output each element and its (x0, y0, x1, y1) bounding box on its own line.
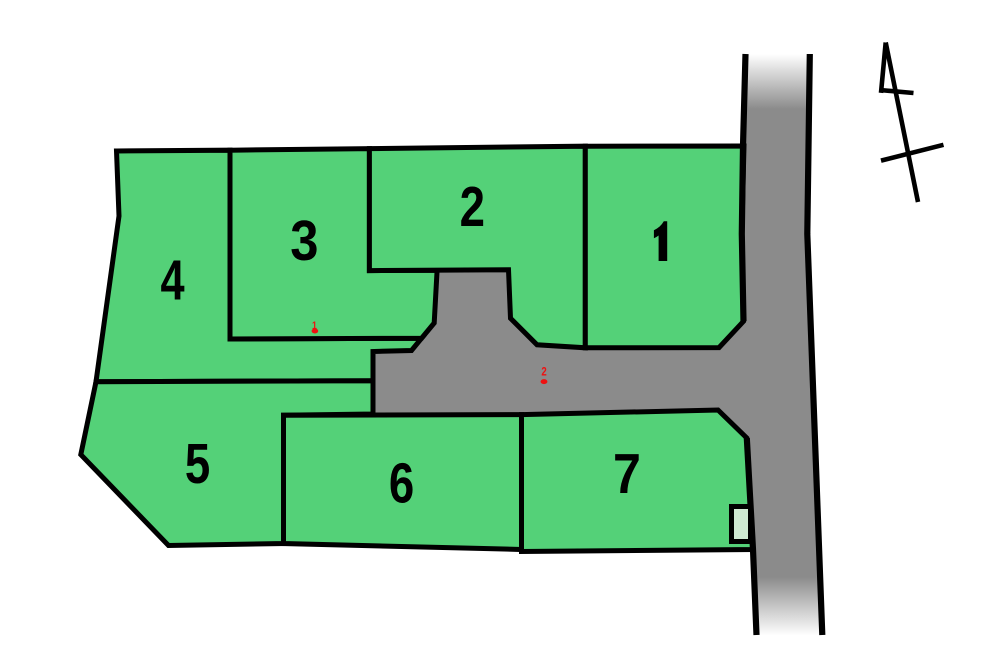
svg-text:2: 2 (541, 366, 546, 379)
svg-text:6: 6 (389, 451, 414, 515)
svg-text:5: 5 (185, 431, 210, 495)
svg-text:4: 4 (160, 248, 184, 312)
svg-text:3: 3 (290, 209, 318, 272)
svg-text:2: 2 (460, 174, 485, 238)
svg-text:7: 7 (613, 442, 641, 506)
